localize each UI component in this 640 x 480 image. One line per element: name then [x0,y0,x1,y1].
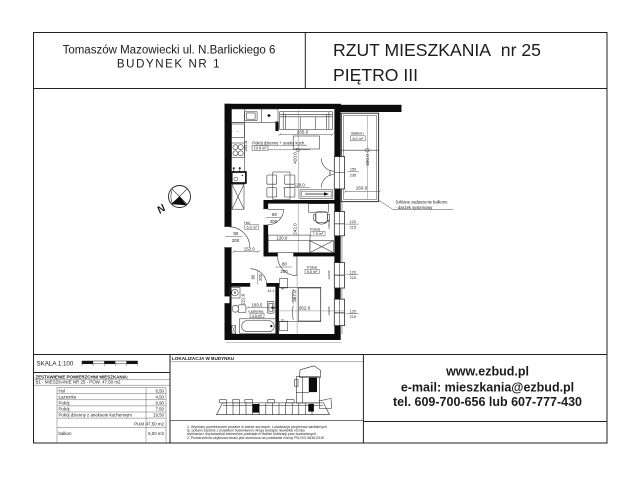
svg-text:Pokój dzienny + aneks kuch.: Pokój dzienny + aneks kuch. [252,140,305,145]
svg-text:7,50: 7,50 [155,407,164,412]
svg-text:120: 120 [350,271,356,275]
svg-text:BUDYNEK NR 1: BUDYNEK NR 1 [117,59,221,71]
svg-text:6,50: 6,50 [155,388,164,393]
svg-text:200: 200 [280,269,288,274]
svg-text:7.5 m²: 7.5 m² [313,232,324,236]
svg-text:367.0: 367.0 [292,290,297,302]
svg-text:- daszek systemowy: - daszek systemowy [396,205,434,210]
svg-text:47,50 m2: 47,50 m2 [146,422,165,427]
svg-text:235: 235 [350,173,356,177]
svg-text:e-mail: mieszkania@ezbud.pl: e-mail: mieszkania@ezbud.pl [401,381,574,395]
svg-text:6,00 m2: 6,00 m2 [148,431,164,436]
svg-text:Tomaszów Mazowiecki ul. N.Barl: Tomaszów Mazowiecki ul. N.Barlickiego 6 [63,45,276,57]
svg-text:80: 80 [251,274,256,279]
svg-text:183.5: 183.5 [252,303,264,308]
svg-text:9.5 m²: 9.5 m² [307,270,318,274]
svg-text:262.0: 262.0 [299,305,311,310]
svg-text:B1 - MIESZKANIE NR 25 - POW. 4: B1 - MIESZKANIE NR 25 - POW. 47,50 m2 [36,380,122,385]
svg-text:Łazienka: Łazienka [249,310,265,314]
svg-text:120: 120 [350,310,356,314]
svg-text:120/90: 120/90 [327,270,331,280]
svg-text:www.ezbud.pl: www.ezbud.pl [445,365,529,379]
svg-text:80: 80 [272,212,277,217]
svg-text:90: 90 [233,231,238,236]
svg-text:420.0: 420.0 [293,152,298,164]
svg-text:291.5: 291.5 [243,140,248,152]
svg-text:215: 215 [350,276,356,280]
svg-text:6.0 m²: 6.0 m² [352,137,363,141]
svg-text:19,50: 19,50 [153,413,165,418]
svg-text:152.0: 152.0 [244,246,256,251]
svg-text:2. Powierzchnia użytkowa lokal: 2. Powierzchnia użytkowa lokalu jest okr… [187,436,324,440]
svg-text:~: ~ [236,129,238,133]
svg-text:150: 150 [350,168,356,172]
svg-text:222.0: 222.0 [241,293,246,305]
svg-text:Łazienka: Łazienka [59,394,77,399]
svg-text:242.0: 242.0 [293,223,298,235]
svg-text:Hol: Hol [244,220,250,225]
svg-text:Pokój dzienny z aneksem kuchen: Pokój dzienny z aneksem kuchennym [59,413,133,418]
svg-text:128.0: 128.0 [294,182,306,187]
svg-text:200: 200 [232,238,240,243]
svg-text:Pokój: Pokój [59,407,70,412]
svg-text:265.0: 265.0 [297,129,309,134]
svg-text:200: 200 [258,273,263,281]
svg-text:120.0: 120.0 [276,236,288,241]
svg-text:Hol: Hol [59,388,66,393]
svg-text:41.1: 41.1 [268,289,275,293]
svg-text:Pokój: Pokój [310,227,320,232]
svg-text:Balkon: Balkon [351,131,363,136]
svg-text:4.5 m²: 4.5 m² [252,314,263,318]
svg-text:215: 215 [350,226,356,230]
svg-text:PIĘTRO III: PIĘTRO III [333,65,418,85]
svg-text:Pokój: Pokój [307,264,317,269]
svg-text:PUM: PUM [134,422,144,427]
svg-text:19.5 m²: 19.5 m² [254,147,268,151]
svg-text:tel. 609-700-656 lub 607-777-4: tel. 609-700-656 lub 607-777-430 [393,395,582,409]
svg-text:balkon: balkon [59,431,72,436]
svg-text:400.0: 400.0 [365,154,370,166]
svg-text:Pokój: Pokój [59,401,70,406]
svg-text:9,90: 9,90 [155,401,164,406]
svg-text:6.3 m²: 6.3 m² [246,226,257,230]
svg-text:200: 200 [270,219,278,224]
svg-text:150.0: 150.0 [356,185,368,190]
svg-text:4,50: 4,50 [155,394,164,399]
svg-text:90/2: 90/2 [328,170,332,176]
svg-text:80: 80 [282,261,287,266]
svg-text:RZUT MIESZKANIA nr 25: RZUT MIESZKANIA nr 25 [333,40,541,60]
svg-text:SKALA 1:100: SKALA 1:100 [37,360,74,367]
svg-text:120: 120 [350,220,356,224]
svg-text:LOKALIZACJA W BUDYNKU: LOKALIZACJA W BUDYNKU [172,356,235,361]
svg-text:215: 215 [350,315,356,319]
